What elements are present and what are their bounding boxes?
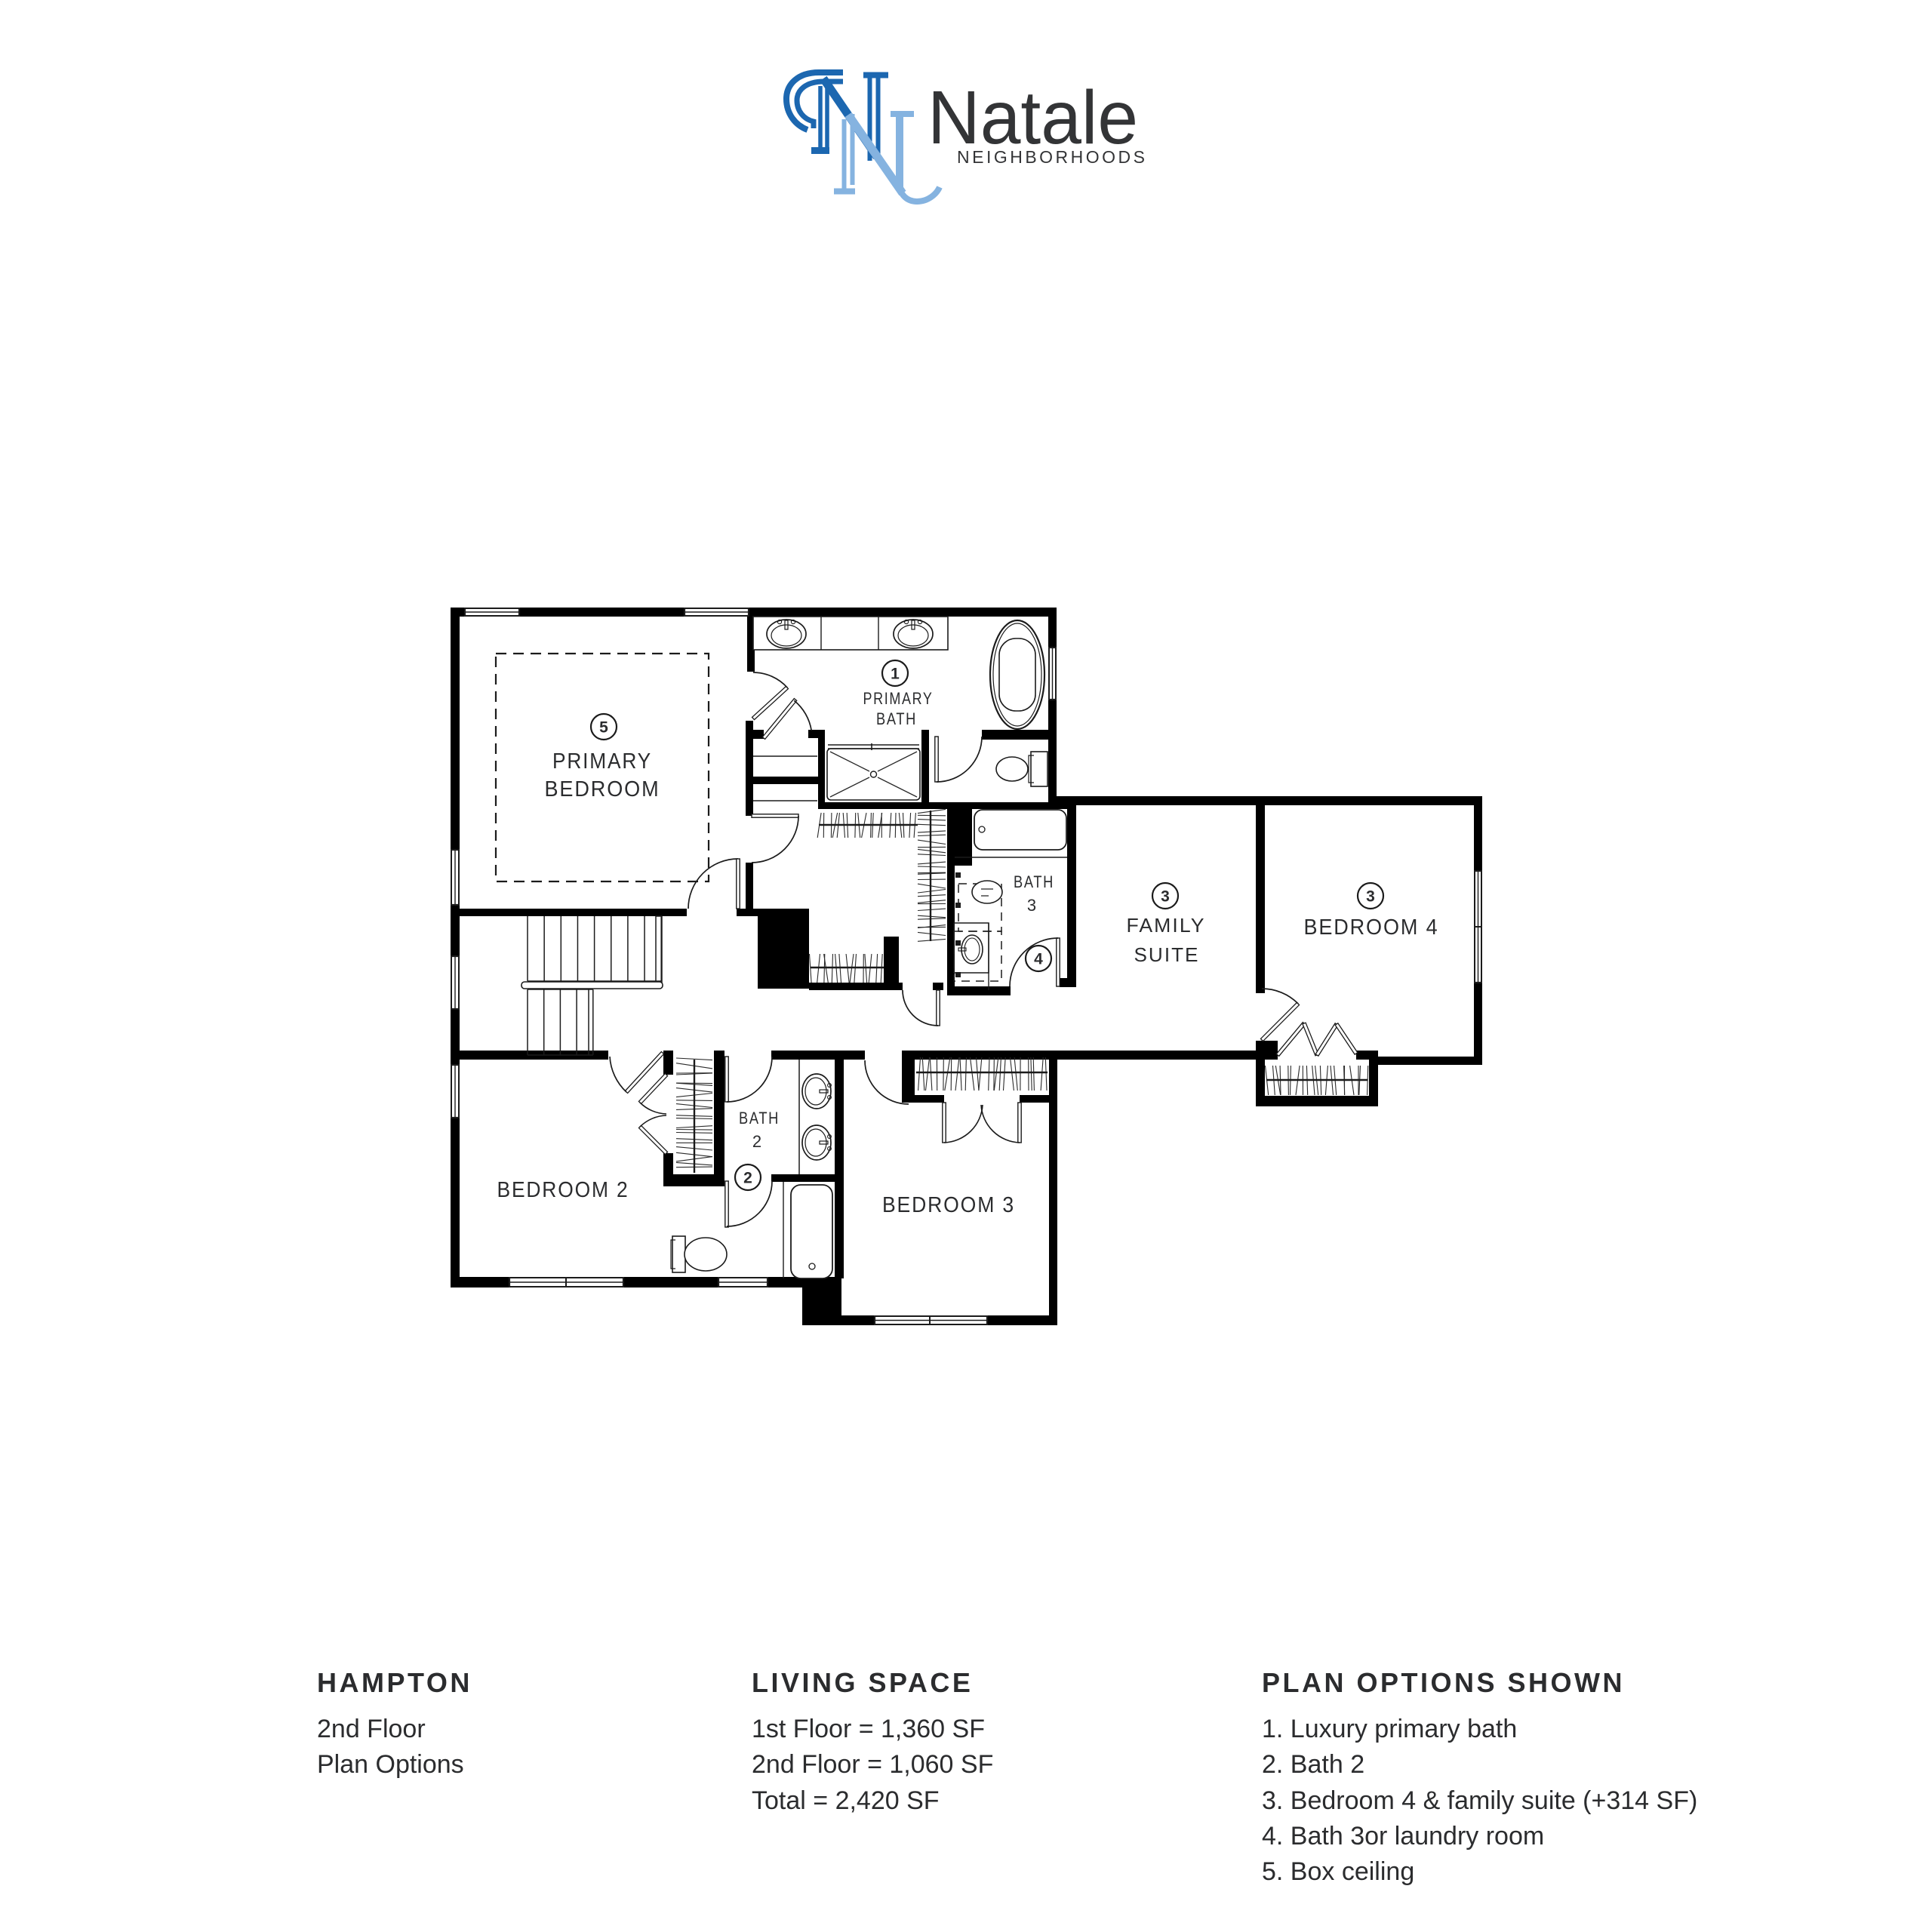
svg-text:PRIMARY: PRIMARY — [552, 749, 652, 774]
svg-text:2nd Floor: 2nd Floor — [317, 1715, 426, 1743]
svg-text:Total = 2,420 SF: Total = 2,420 SF — [752, 1786, 940, 1815]
svg-text:BEDROOM 3: BEDROOM 3 — [882, 1193, 1015, 1217]
svg-text:SUITE: SUITE — [1134, 943, 1200, 966]
svg-text:Plan Options: Plan Options — [317, 1750, 464, 1779]
svg-text:LIVING SPACE: LIVING SPACE — [752, 1667, 973, 1698]
svg-text:5: 5 — [599, 719, 608, 737]
svg-text:BATH: BATH — [739, 1109, 780, 1128]
svg-text:3: 3 — [1027, 896, 1038, 915]
svg-text:FAMILY: FAMILY — [1127, 914, 1206, 937]
svg-text:BATH: BATH — [1014, 872, 1054, 891]
svg-text:4: 4 — [1034, 951, 1043, 968]
svg-text:5. Box ceiling: 5. Box ceiling — [1262, 1857, 1414, 1886]
svg-text:2nd Floor = 1,060 SF: 2nd Floor = 1,060 SF — [752, 1750, 993, 1779]
svg-text:2: 2 — [743, 1170, 752, 1187]
svg-text:BATH: BATH — [876, 709, 917, 728]
svg-text:1: 1 — [891, 666, 900, 683]
svg-text:BEDROOM 2: BEDROOM 2 — [497, 1178, 629, 1202]
svg-text:BEDROOM 4: BEDROOM 4 — [1304, 915, 1439, 940]
svg-text:3: 3 — [1161, 888, 1170, 906]
svg-text:2. Bath 2: 2. Bath 2 — [1262, 1750, 1364, 1779]
svg-text:3: 3 — [1366, 888, 1375, 906]
svg-text:3. Bedroom 4 & family suite (+: 3. Bedroom 4 & family suite (+314 SF) — [1262, 1786, 1697, 1815]
svg-text:PRIMARY: PRIMARY — [863, 689, 934, 708]
svg-text:1st Floor = 1,360 SF: 1st Floor = 1,360 SF — [752, 1715, 985, 1743]
svg-text:4. Bath 3or laundry room: 4. Bath 3or laundry room — [1262, 1822, 1544, 1850]
svg-text:1. Luxury primary bath: 1. Luxury primary bath — [1262, 1715, 1517, 1743]
svg-text:2: 2 — [752, 1132, 763, 1151]
svg-text:BEDROOM: BEDROOM — [545, 777, 660, 801]
svg-text:PLAN OPTIONS SHOWN: PLAN OPTIONS SHOWN — [1262, 1667, 1625, 1698]
svg-text:HAMPTON: HAMPTON — [317, 1667, 472, 1698]
